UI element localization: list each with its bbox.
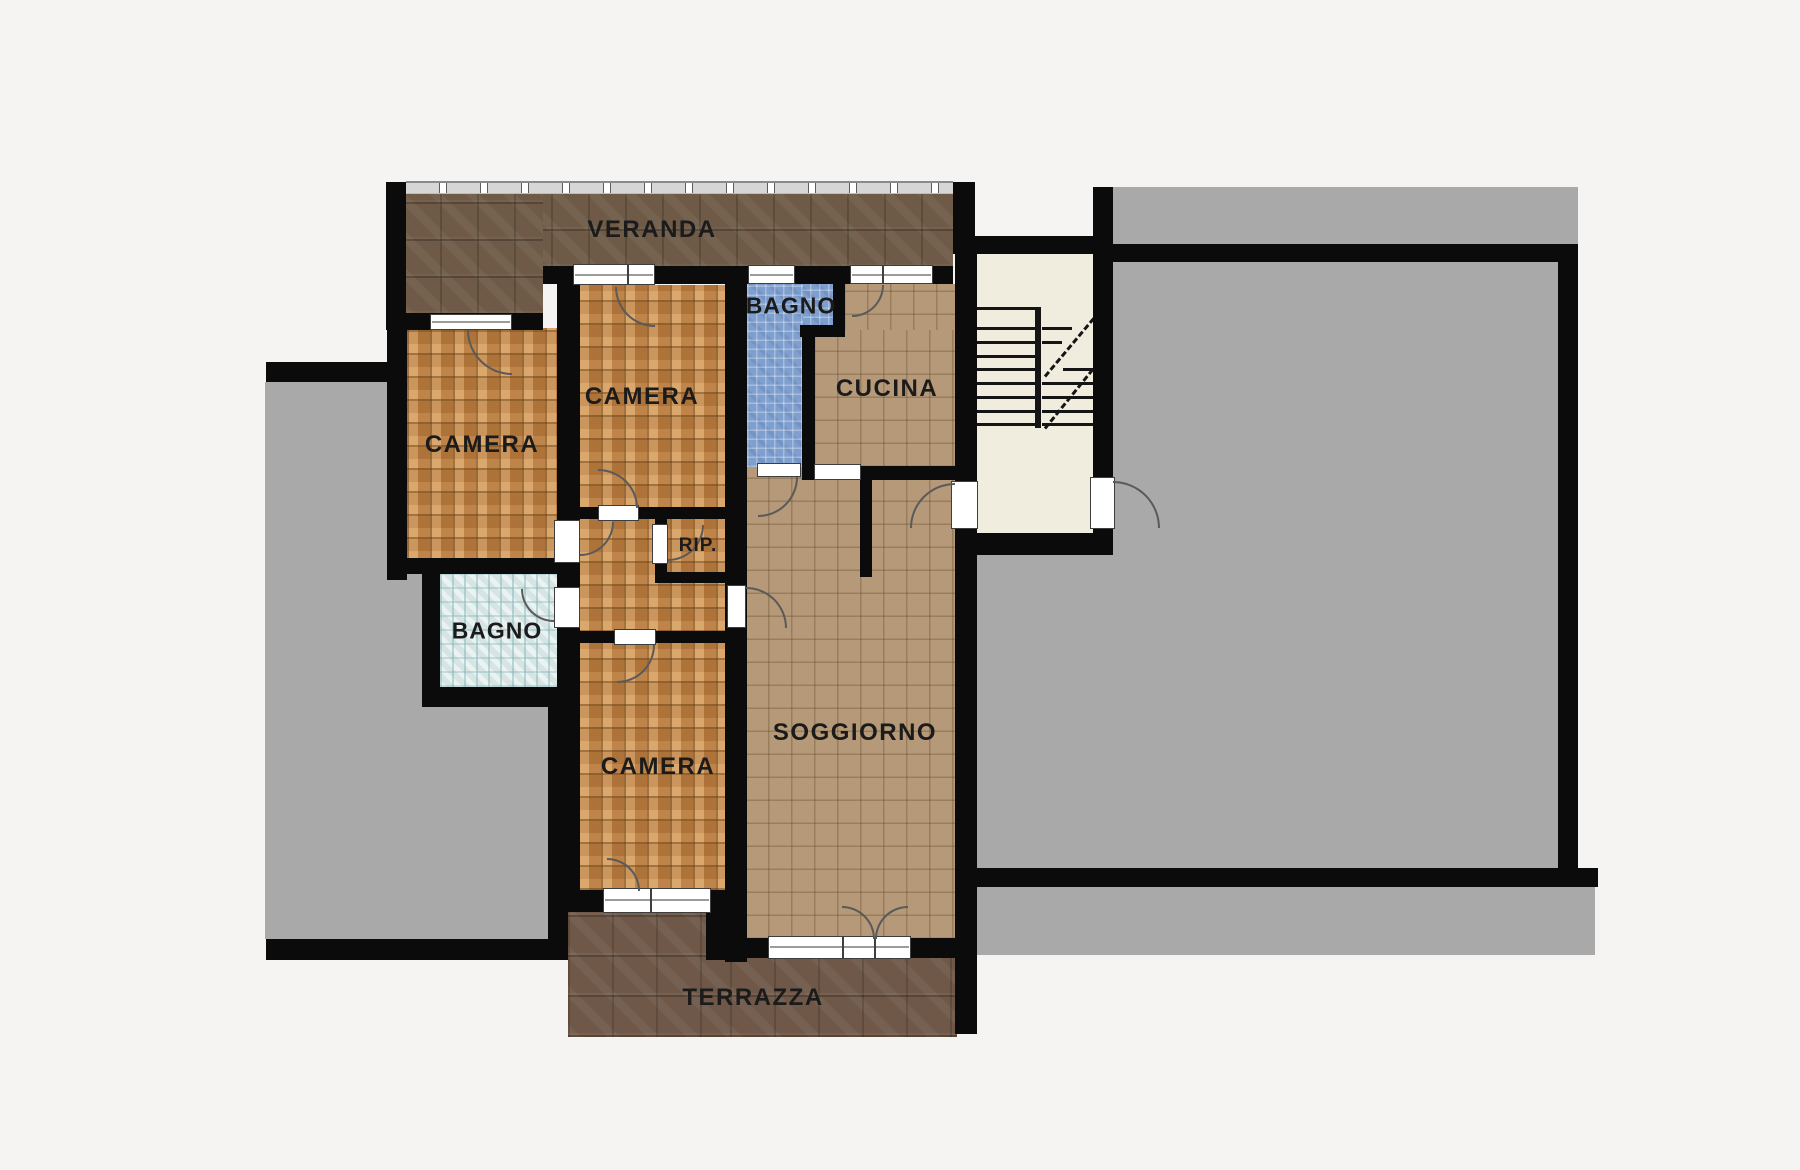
- room-veranda-floor-left-wing: [403, 190, 543, 315]
- room-label-soggiorno: SOGGIORNO: [773, 719, 937, 747]
- stair-tread: [1042, 341, 1062, 344]
- room-soggiorno-floor: [745, 467, 957, 939]
- window-divider: [882, 266, 884, 283]
- wall: [907, 938, 957, 958]
- wall: [560, 890, 605, 912]
- wall: [955, 254, 977, 1034]
- room-label-bagno-bottom: BAGNO: [452, 618, 543, 645]
- wall: [422, 558, 440, 707]
- wall: [745, 938, 770, 958]
- wall: [860, 470, 872, 577]
- window-bagno-top: [748, 265, 795, 284]
- door-opening-corridor-soggiorno: [727, 585, 746, 628]
- door-opening-camera-left: [554, 520, 580, 563]
- wall: [387, 558, 578, 574]
- window-door-cucina: [850, 265, 933, 284]
- stair-tread: [977, 327, 1037, 330]
- wall: [1112, 244, 1578, 262]
- window-french-doors-soggiorno: [768, 936, 911, 959]
- stair-tread: [977, 355, 1037, 358]
- stair-tread: [1042, 410, 1093, 413]
- door-opening-bagno-top-south: [757, 463, 801, 477]
- wall: [706, 890, 747, 960]
- room-label-rip: RIP.: [679, 535, 718, 557]
- wall: [386, 182, 406, 330]
- wall: [266, 362, 387, 382]
- stair-tread: [977, 307, 1037, 310]
- room-label-camera-left: CAMERA: [425, 431, 539, 459]
- door-opening-bagno-bottom: [554, 587, 580, 628]
- wall: [955, 533, 1113, 555]
- wall: [548, 687, 568, 960]
- room-label-camera-bottom: CAMERA: [601, 753, 715, 781]
- window-divider: [842, 937, 844, 958]
- neighbor-area-left-mid: [265, 572, 422, 712]
- window: [430, 314, 512, 330]
- wall: [387, 313, 407, 580]
- wall: [958, 868, 1598, 887]
- wall: [953, 236, 1113, 254]
- stair-tread: [1042, 382, 1093, 385]
- door-opening-cucina-soggiorno: [814, 464, 861, 480]
- entrance-door-opening: [951, 481, 978, 529]
- neighbor-area-right-bottom-strip: [977, 887, 1595, 955]
- stair-tread: [977, 382, 1037, 385]
- room-label-veranda: VERANDA: [587, 216, 716, 244]
- wall: [802, 325, 815, 475]
- stair-tread: [977, 396, 1037, 399]
- window-divider: [650, 889, 652, 912]
- wall: [655, 572, 725, 583]
- room-label-cucina: CUCINA: [836, 375, 938, 403]
- stair-tread: [977, 410, 1037, 413]
- room-label-bagno-top: BAGNO: [746, 293, 837, 320]
- wall: [1558, 244, 1578, 887]
- stair-stringer: [1035, 307, 1041, 428]
- room-label-camera-middle: CAMERA: [585, 383, 699, 411]
- window-door-camera-bottom: [603, 888, 711, 913]
- neighbor-area-left-lower: [265, 707, 548, 939]
- window-divider: [874, 937, 876, 958]
- window-door-camera-middle: [573, 264, 655, 285]
- room-label-terrazza: TERRAZZA: [682, 984, 823, 1012]
- wall: [266, 939, 566, 960]
- door-opening-stair-to-neighbor: [1090, 477, 1115, 529]
- window-divider: [627, 265, 629, 284]
- door-opening-camera-bottom: [614, 629, 656, 645]
- neighbor-area-right-top-strip: [1112, 187, 1578, 244]
- stair-tread: [977, 341, 1037, 344]
- door-opening-rip: [652, 524, 668, 564]
- neighbor-area-left-upper: [265, 382, 387, 578]
- stair-tread: [1042, 327, 1072, 330]
- veranda-railing: [406, 181, 953, 194]
- floor-plan: VERANDA CAMERA CAMERA BAGNO CUCINA RIP. …: [0, 0, 1800, 1170]
- stair-tread: [977, 368, 1037, 371]
- stair-tread: [977, 423, 1037, 426]
